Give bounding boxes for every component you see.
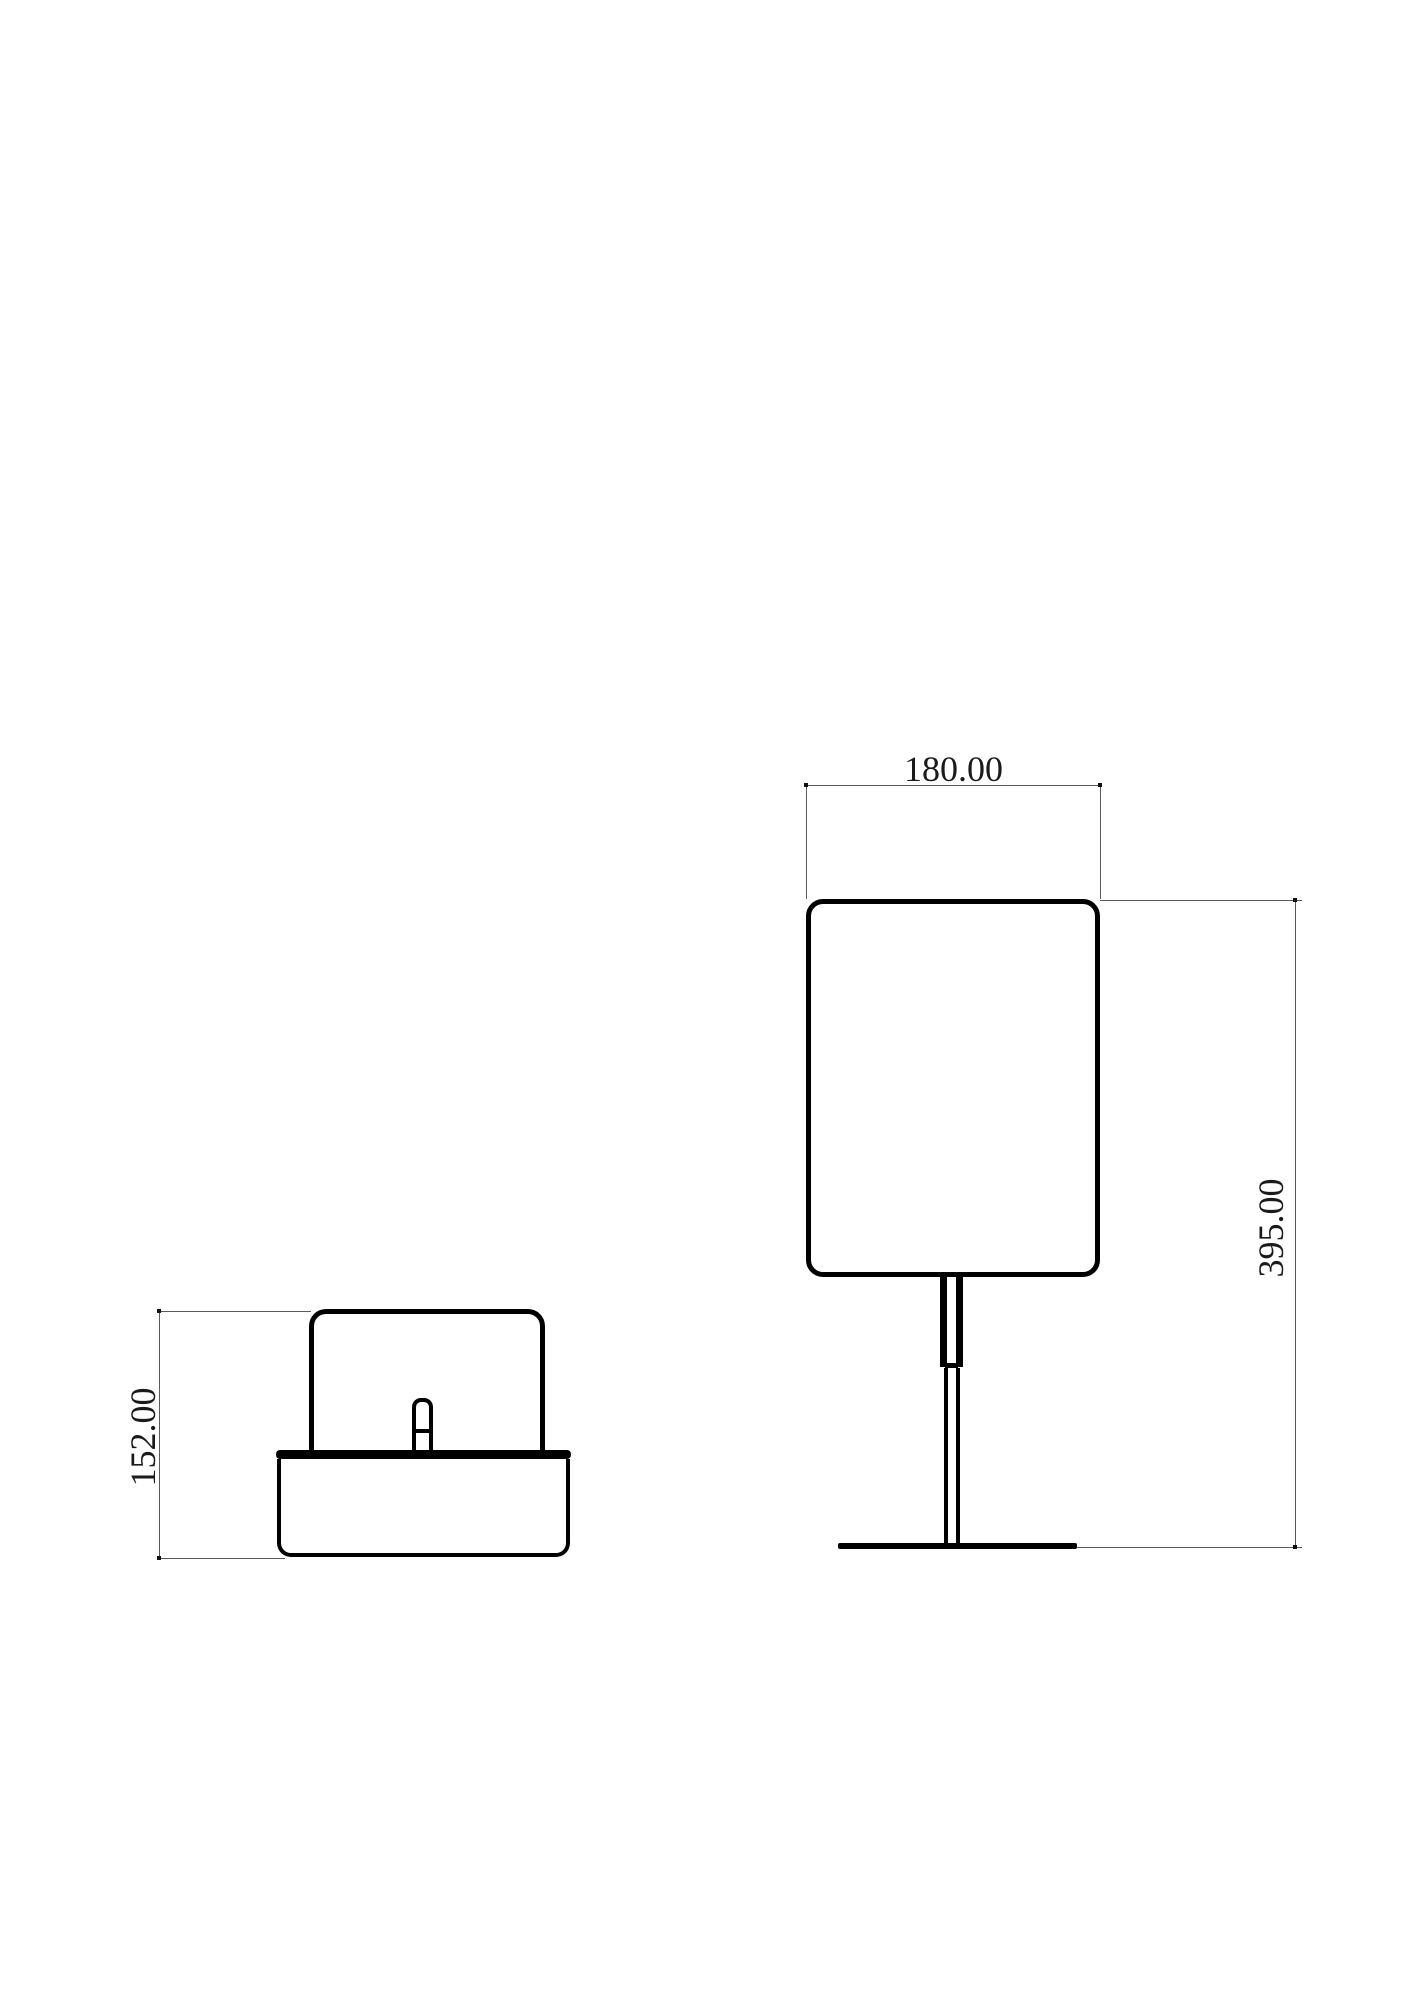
side-view-connector-outline [412,1398,433,1451]
drawing-canvas: 180.00 395.00 152.00 [0,0,1414,2000]
extension-line [159,1558,285,1559]
extension-line [1100,785,1101,899]
dimension-line [1295,900,1296,1548]
front-view-stem-upper [940,1277,963,1367]
dimension-endpoint-dot [157,1309,161,1313]
side-view-connector-joint-line [412,1429,433,1433]
front-view-shade-outline [806,899,1100,1277]
front-view-base-plate [838,1543,1077,1549]
dimension-label-side-height: 152.00 [125,1388,161,1487]
extension-line [1100,900,1302,901]
extension-line [806,785,807,899]
side-view-base-top-plate [276,1450,571,1459]
dimension-endpoint-dot [157,1556,161,1560]
dimension-endpoint-dot [1293,1545,1297,1549]
extension-line [1077,1547,1302,1548]
extension-line [159,1311,311,1312]
side-view-base-outline [277,1459,570,1557]
dimension-label-front-width: 180.00 [806,751,1101,787]
dimension-label-front-height: 395.00 [1253,1179,1289,1278]
front-view-stem-lower [944,1368,960,1545]
dimension-endpoint-dot [1293,898,1297,902]
